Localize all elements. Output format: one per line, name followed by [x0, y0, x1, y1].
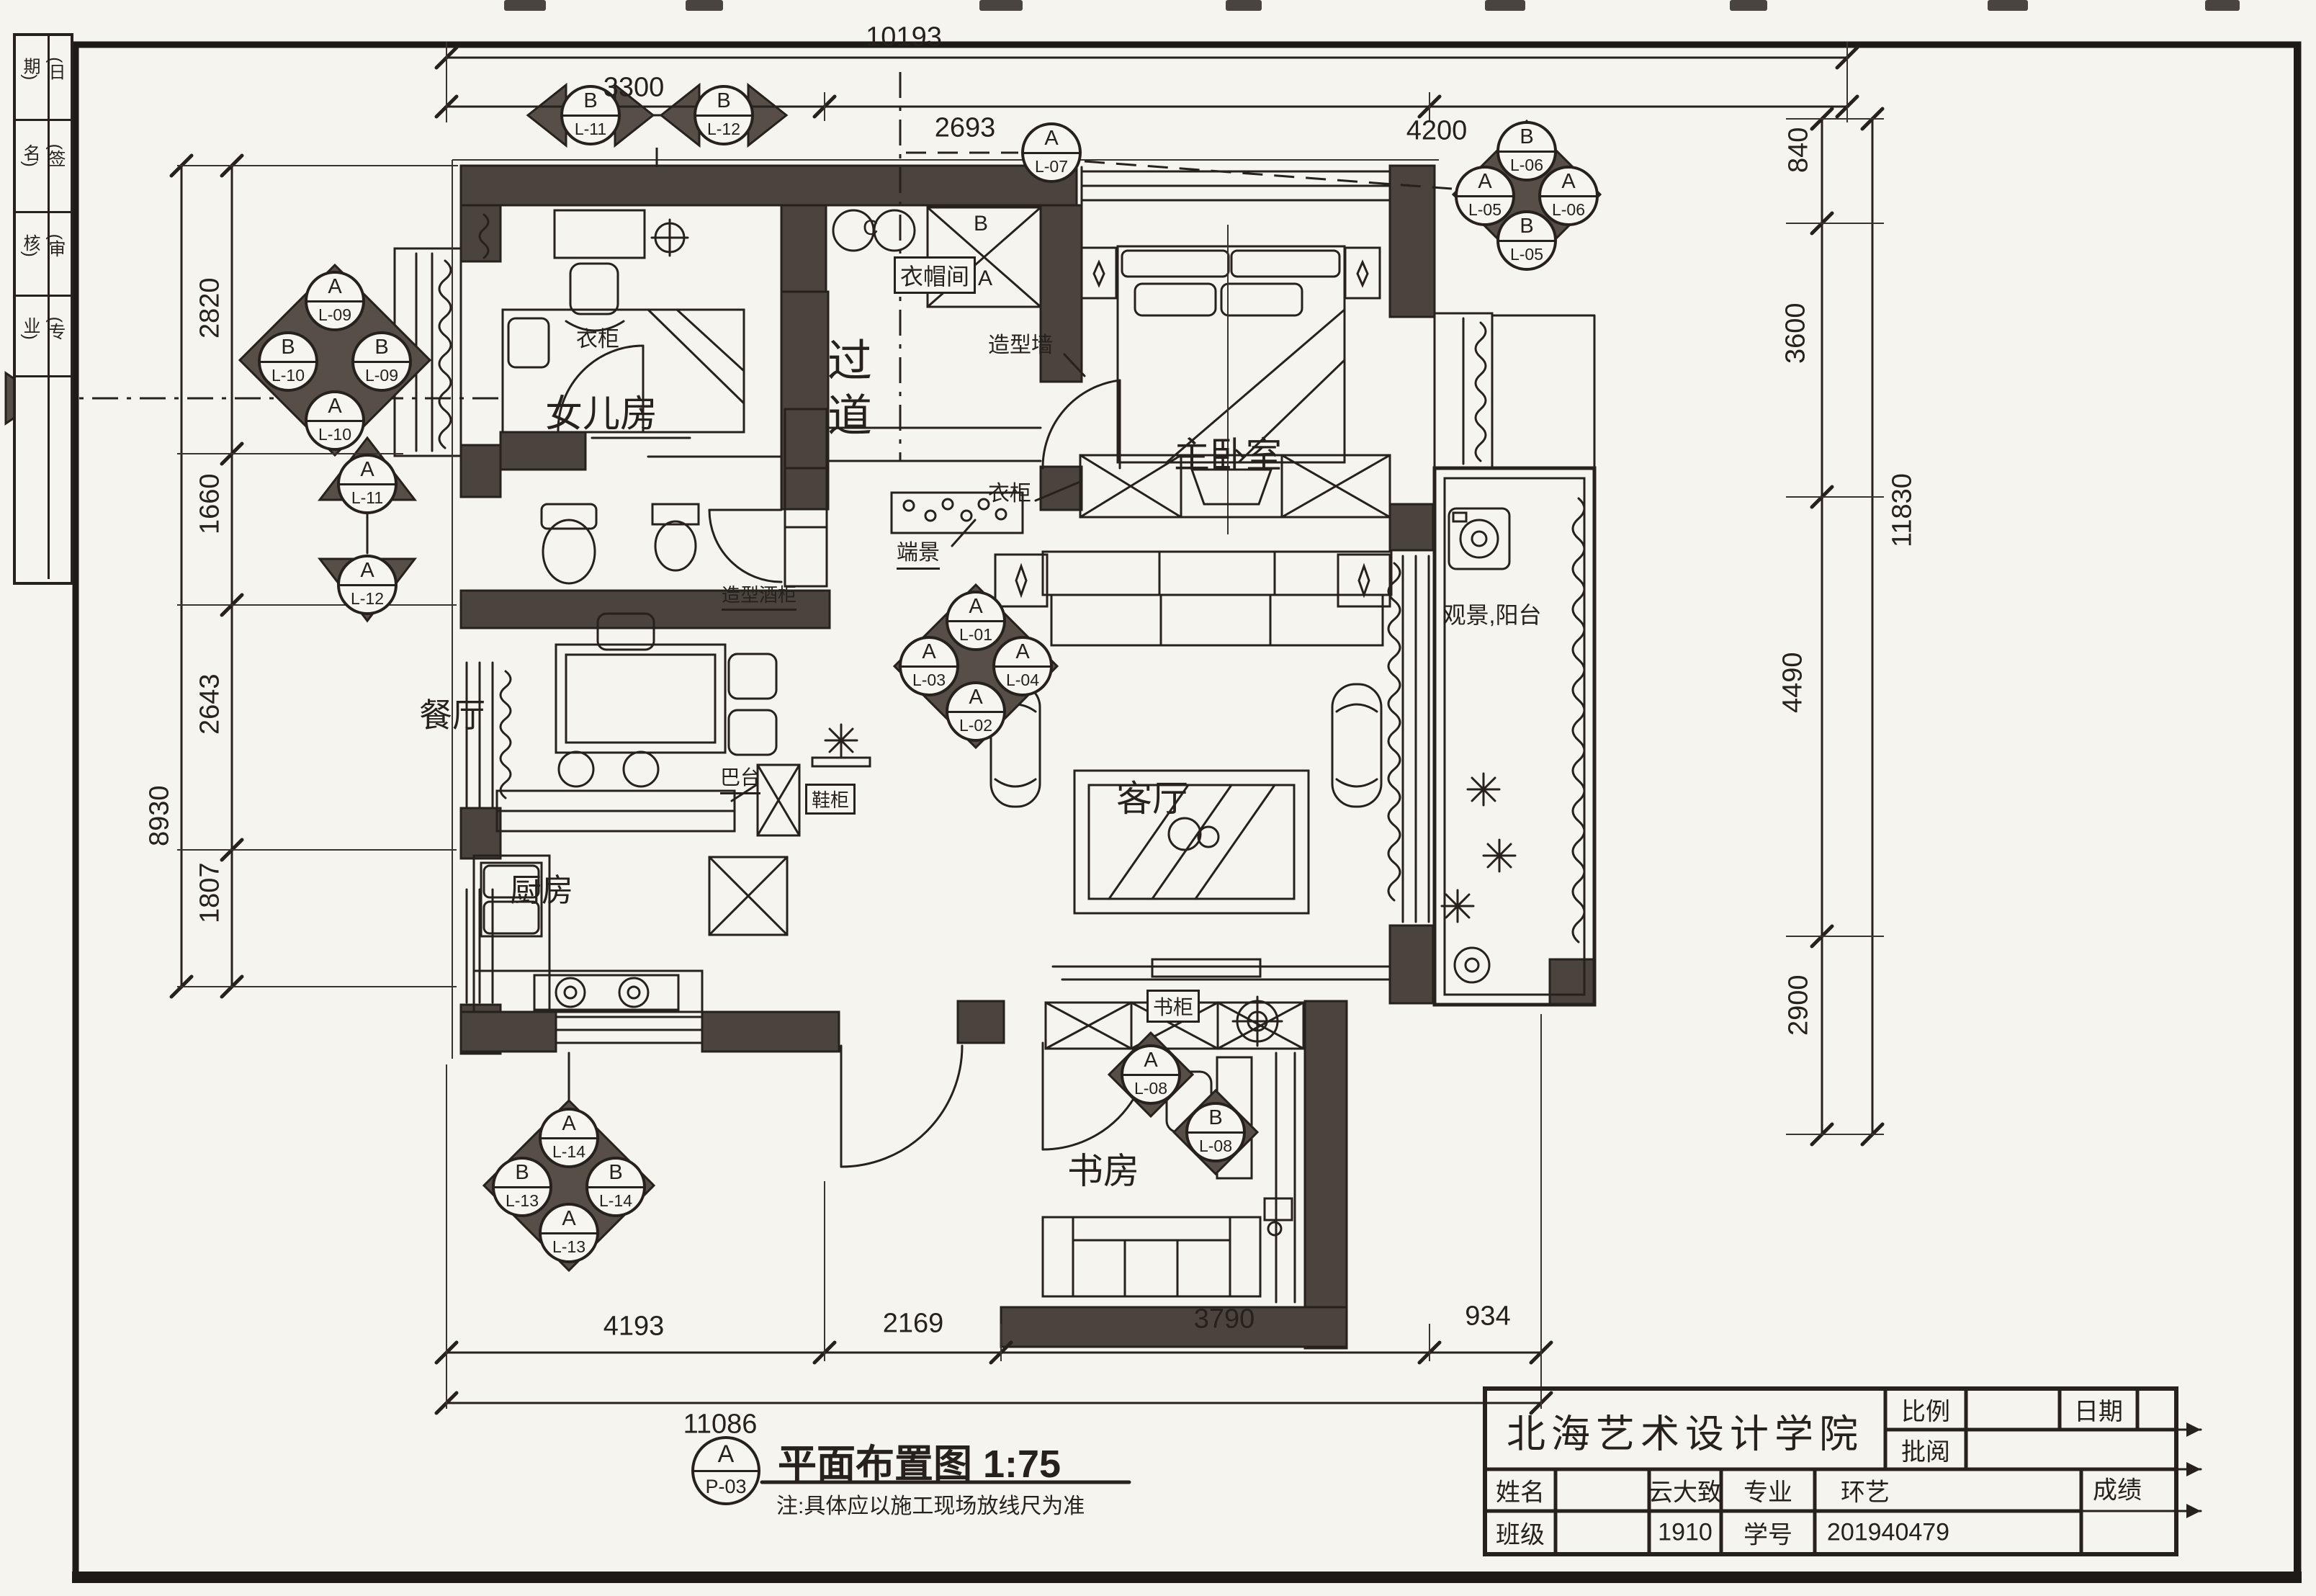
fixtures-bathroom	[542, 504, 699, 583]
strip-cell: (签名)	[16, 121, 71, 213]
marker-code: L-11	[563, 117, 618, 143]
elevation-marker: A L-13	[539, 1203, 599, 1263]
drawing-title: 平面布置图 1:75	[778, 1432, 1061, 1489]
room-label-study: 书房	[1067, 1142, 1139, 1194]
date-label: 日期	[2074, 1392, 2123, 1427]
strip-cell: (专业)	[16, 297, 71, 377]
strip-cell	[16, 377, 71, 579]
room-label-kitchen: 厨房	[510, 864, 573, 910]
marker-letter: A	[948, 593, 1003, 622]
elevation-marker: A L-12	[337, 555, 398, 615]
dim-bottom-seg: 2169	[883, 1309, 944, 1340]
marker-letter: B	[354, 334, 409, 363]
marker-code: L-09	[354, 363, 409, 390]
room-label-cloakroom: 衣帽间	[894, 256, 976, 294]
marker-letter: B	[1188, 1105, 1243, 1134]
elevation-marker: A L-11	[337, 454, 398, 514]
label-shoe-cabinet: 鞋柜	[805, 784, 856, 815]
marker-letter: A	[1541, 169, 1596, 197]
marker-letter: A	[1458, 169, 1512, 197]
school-name: 北海艺术设计学院	[1507, 1402, 1864, 1459]
marker-letter: B	[1499, 124, 1554, 153]
marker-letter: B	[588, 1160, 643, 1188]
label-feature-wall: 造型墙	[988, 327, 1053, 359]
marker-letter: A	[542, 1206, 596, 1234]
furniture-dining	[497, 614, 776, 831]
strip-cell: (审核)	[16, 213, 71, 297]
marker-letter: A	[1123, 1047, 1178, 1076]
label-wardrobe-master: 衣柜	[988, 475, 1031, 507]
elevation-marker: B L-08	[1185, 1102, 1246, 1162]
marker-code: L-14	[588, 1188, 643, 1215]
review-label: 批阅	[1901, 1433, 1950, 1468]
elevation-marker: A L-02	[946, 681, 1006, 742]
furniture-entrance	[758, 725, 870, 835]
dim-bottom-seg: 3790	[1194, 1304, 1255, 1335]
elevation-marker: A L-08	[1121, 1044, 1181, 1105]
marker-code: L-10	[308, 422, 362, 449]
label-wardrobe-daughter: 衣柜	[576, 321, 619, 353]
elevation-marker: B L-10	[258, 331, 318, 392]
room-label-corridor: 过道	[812, 337, 877, 447]
marker-code: L-12	[340, 586, 395, 613]
elevation-marker: A L-07	[1021, 122, 1082, 183]
strip-cell: (日期)	[16, 36, 71, 121]
marker-code: L-13	[542, 1234, 596, 1261]
name-label: 姓名	[1496, 1473, 1545, 1508]
bubble-code: P-03	[694, 1472, 758, 1503]
label-letter-b: B	[974, 212, 988, 236]
room-label-balcony: 观景,阳台	[1443, 597, 1542, 630]
elevation-marker: A L-10	[305, 390, 365, 451]
marker-letter: B	[261, 334, 315, 363]
strip-label: (审核)	[17, 233, 68, 274]
marker-letter: A	[308, 274, 362, 302]
marker-code: L-11	[340, 485, 395, 512]
marker-code: L-02	[948, 713, 1003, 740]
label-letter-a: A	[978, 266, 992, 291]
scale-label: 比例	[1901, 1392, 1950, 1427]
elevation-marker: A L-09	[305, 271, 365, 331]
furniture-master	[1036, 225, 1390, 534]
dim-bottom-seg: 934	[1465, 1301, 1510, 1332]
major-value: 环艺	[1841, 1473, 1890, 1508]
elevation-marker: B L-09	[351, 331, 412, 392]
dim-bottom-seg: 4193	[603, 1312, 665, 1342]
label-end-view: 端景	[897, 534, 940, 570]
marker-letter: A	[340, 457, 395, 485]
marker-letter: B	[696, 88, 751, 117]
dim-top-seg: 2693	[935, 113, 996, 144]
room-label-dining: 餐厅	[419, 689, 485, 737]
marker-code: L-12	[696, 117, 751, 143]
revision-strip: (日期) (签名) (审核) (专业)	[13, 33, 73, 585]
grade-label: 成绩	[2093, 1471, 2142, 1506]
label-wine-cabinet: 造型酒柜	[722, 580, 796, 611]
dim-top-overall: 10193	[866, 22, 942, 53]
elevation-marker: B L-12	[694, 85, 754, 145]
room-label-master: 主卧室	[1174, 426, 1282, 478]
marker-code: L-08	[1123, 1076, 1178, 1103]
name-value: 云大致	[1648, 1473, 1722, 1508]
marker-letter: A	[308, 393, 362, 422]
strip-divider	[48, 377, 50, 579]
marker-code: L-08	[1188, 1134, 1243, 1160]
label-bookcase: 书柜	[1146, 990, 1200, 1023]
marker-letter: A	[948, 684, 1003, 713]
marker-code: L-05	[1499, 242, 1554, 269]
strip-label: (签名)	[17, 143, 68, 189]
class-value: 1910	[1658, 1519, 1713, 1547]
class-label: 班级	[1496, 1515, 1545, 1551]
marker-code: L-09	[308, 302, 362, 329]
marker-letter: B	[495, 1160, 549, 1188]
strip-label: (专业)	[17, 316, 68, 356]
marker-letter: B	[1499, 213, 1554, 242]
dim-top-seg: 3300	[603, 73, 665, 104]
marker-code: L-07	[1024, 154, 1079, 181]
major-label: 专业	[1743, 1473, 1792, 1508]
sid-label: 学号	[1743, 1515, 1792, 1551]
marker-letter: A	[902, 639, 956, 668]
marker-code: L-04	[995, 668, 1050, 694]
drawing-sheet: B L-11 B L-12 A L-09 B L-10 B L-09 A L-1…	[0, 0, 2316, 1596]
marker-letter: A	[542, 1111, 596, 1139]
label-letter-c: C	[863, 216, 879, 241]
dim-bottom-overall: 11086	[683, 1409, 758, 1440]
label-bar-counter: 巴台	[720, 762, 760, 794]
marker-code: L-10	[261, 363, 315, 390]
strip-label: (日期)	[17, 57, 68, 99]
drawing-number-bubble: A P-03	[691, 1436, 760, 1505]
furniture-balcony	[1442, 508, 1515, 982]
marker-letter: A	[340, 557, 395, 586]
elevation-marker: B L-05	[1496, 210, 1557, 271]
sid-value: 201940479	[1827, 1519, 1949, 1547]
marker-letter: A	[995, 639, 1050, 668]
furniture-living	[991, 552, 1391, 979]
room-label-daughter: 女儿房	[545, 384, 657, 438]
drawing-note: 注:具体应以施工现场放线尺为准	[776, 1488, 1085, 1520]
dim-top-seg: 4200	[1406, 116, 1468, 147]
room-label-living: 客厅	[1116, 770, 1188, 822]
marker-letter: A	[1024, 125, 1079, 154]
bubble-letter: A	[694, 1439, 758, 1472]
